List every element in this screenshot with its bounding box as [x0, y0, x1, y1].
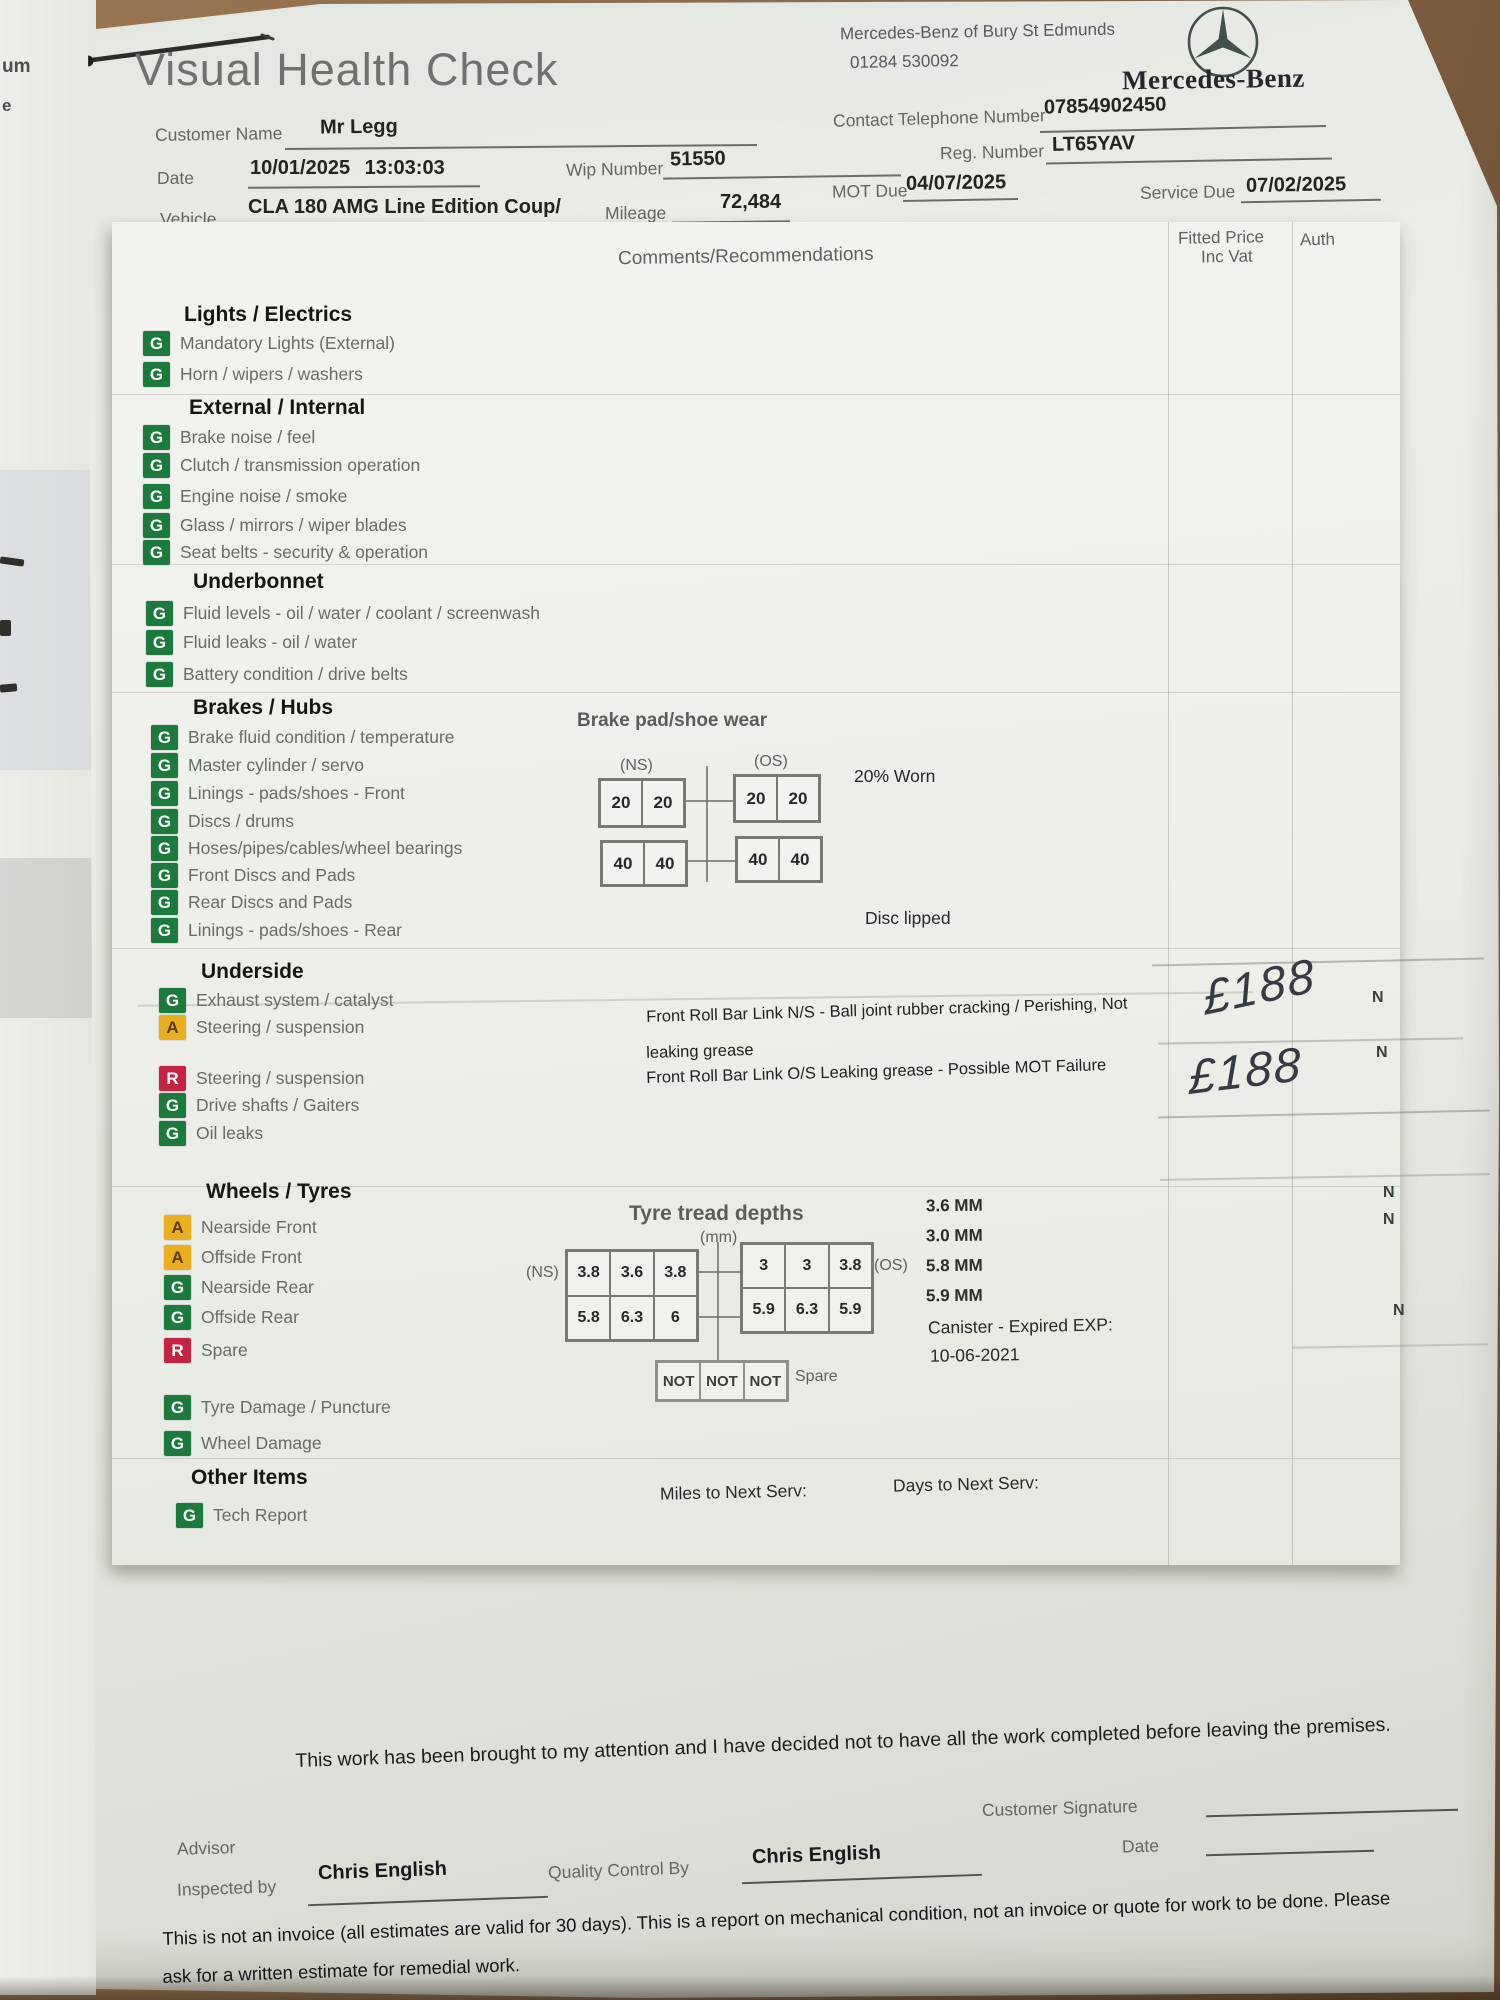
table-row-line — [112, 564, 1400, 565]
grid-cell: 20 — [735, 776, 777, 821]
status-badge-g: G — [143, 453, 170, 478]
customer-signature-label: Customer Signature — [982, 1796, 1138, 1821]
checklist-label: Nearside Front — [201, 1217, 317, 1238]
grid-cell: 6 — [654, 1296, 697, 1341]
status-badge-g: G — [176, 1503, 203, 1528]
grid-cell: 5.9 — [829, 1288, 872, 1332]
table-column-line — [1292, 222, 1293, 1565]
checklist-label: Oil leaks — [196, 1123, 263, 1144]
inspected-by-label: Inspected by — [177, 1876, 277, 1900]
table-row-line — [112, 1458, 1400, 1459]
paper-fragment-text: e — [2, 96, 11, 116]
service-due-label: Service Due — [1140, 181, 1236, 204]
grid-cell: 6.3 — [785, 1288, 828, 1332]
mot-due-label: MOT Due — [832, 180, 908, 202]
tyre-os-label: (OS) — [874, 1257, 908, 1275]
status-badge-g: G — [143, 331, 170, 356]
spare-tread-grid: NOTNOTNOT — [655, 1360, 789, 1402]
table-row-line — [112, 394, 1400, 395]
contact-telephone-value: 07854902450 — [1044, 93, 1167, 119]
auth-header: Auth — [1300, 230, 1335, 251]
photographed-document: { "title": "Visual Health Check", "deale… — [0, 0, 1500, 2000]
checklist-label: Offside Rear — [201, 1307, 299, 1328]
grid-cell: 20 — [600, 780, 642, 826]
checklist-label: Steering / suspension — [196, 1068, 364, 1089]
section-title: Underbonnet — [193, 570, 324, 594]
checklist-label: Hoses/pipes/cables/wheel bearings — [188, 838, 462, 859]
section-title: Underside — [201, 960, 304, 984]
status-badge-g: G — [151, 836, 178, 861]
auth-mark: N — [1372, 989, 1384, 1007]
brake-ns-label: (NS) — [620, 757, 653, 775]
status-badge-r: R — [159, 1066, 186, 1091]
auth-mark: N — [1383, 1211, 1395, 1229]
checklist-label: Engine noise / smoke — [180, 486, 347, 507]
comments-header: Comments/Recommendations — [618, 244, 874, 270]
auth-mark: N — [1383, 1184, 1395, 1202]
status-badge-g: G — [164, 1275, 191, 1300]
grid-cell: NOT — [700, 1362, 743, 1400]
footer-date-label: Date — [1122, 1836, 1160, 1858]
table-row-line — [112, 692, 1400, 693]
grid-cell: 40 — [737, 838, 779, 881]
vehicle-value: CLA 180 AMG Line Edition Coup/ — [248, 196, 561, 219]
disc-lipped-note: Disc lipped — [865, 908, 951, 929]
canister-note-line2: 10-06-2021 — [930, 1344, 1020, 1367]
checklist-label: Fluid levels - oil / water / coolant / s… — [183, 603, 540, 624]
axle-line — [699, 1271, 740, 1273]
tyre-tread-title: Tyre tread depths — [629, 1202, 804, 1226]
status-badge-g: G — [146, 601, 173, 626]
status-badge-g: G — [159, 988, 186, 1013]
ink-mark — [0, 683, 17, 692]
status-badge-a: A — [159, 1015, 186, 1040]
section-title: Lights / Electrics — [184, 303, 352, 327]
status-badge-g: G — [159, 1121, 186, 1146]
inspected-by-value: Chris English — [318, 1858, 448, 1885]
customer-declaration: This work has been brought to my attenti… — [295, 1714, 1391, 1773]
grid-cell: 20 — [777, 776, 819, 821]
photo-shadow — [0, 1976, 1500, 2000]
status-badge-g: G — [151, 809, 178, 834]
checklist-label: Battery condition / drive belts — [183, 664, 408, 685]
axle-line — [688, 860, 735, 862]
status-badge-g: G — [151, 918, 178, 943]
paper-fragment-text: um — [2, 56, 31, 78]
auth-mark: N — [1376, 1044, 1388, 1062]
wip-number-label: Wip Number — [566, 158, 664, 181]
brake-wear-ns-front: 2020 — [598, 778, 686, 828]
axle-line — [686, 800, 735, 802]
checklist-label: Linings - pads/shoes - Front — [188, 783, 405, 804]
checklist-label: Mandatory Lights (External) — [180, 333, 395, 354]
status-badge-a: A — [164, 1215, 191, 1240]
customer-name-label: Customer Name — [155, 123, 283, 146]
checklist-label: Tyre Damage / Puncture — [201, 1397, 391, 1418]
tyre-tread-ns-grid: 3.83.63.85.86.36 — [565, 1249, 699, 1342]
status-badge-r: R — [164, 1338, 191, 1363]
grid-cell: 40 — [779, 838, 821, 881]
tyre-ns-label: (NS) — [526, 1264, 559, 1282]
brake-wear-ns-rear: 4040 — [600, 840, 688, 887]
table-column-line — [1168, 222, 1169, 1565]
grid-cell: 3.8 — [654, 1251, 697, 1296]
tread-reading: 3.0 MM — [926, 1226, 983, 1247]
tyre-tread-os-grid: 333.85.96.35.9 — [740, 1242, 874, 1334]
grid-cell: 3.8 — [829, 1244, 872, 1288]
auth-mark: N — [1393, 1302, 1405, 1320]
grid-cell: 3.6 — [610, 1251, 653, 1296]
status-badge-g: G — [143, 513, 170, 538]
status-badge-g: G — [151, 781, 178, 806]
quality-control-label: Quality Control By — [548, 1858, 690, 1884]
status-badge-g: G — [151, 863, 178, 888]
checklist-label: Seat belts - security & operation — [180, 542, 428, 563]
section-title: Wheels / Tyres — [206, 1180, 352, 1204]
canister-note-line1: Canister - Expired EXP: — [928, 1314, 1113, 1338]
underlying-paper-shadow — [0, 858, 96, 1018]
field-underline — [1040, 125, 1326, 133]
brake-wear-os-rear: 4040 — [735, 836, 823, 883]
checklist-label: Fluid leaks - oil / water — [183, 632, 357, 653]
field-underline — [248, 185, 480, 189]
status-badge-g: G — [151, 890, 178, 915]
date-line — [1206, 1850, 1374, 1856]
checklist-label: Master cylinder / servo — [188, 755, 364, 776]
status-badge-g: G — [151, 725, 178, 750]
checklist-label: Brake fluid condition / temperature — [188, 727, 455, 748]
grid-cell: NOT — [744, 1362, 787, 1400]
checklist-label: Spare — [201, 1340, 248, 1361]
axle-line — [706, 766, 708, 882]
section-title: External / Internal — [189, 396, 365, 420]
reg-number-value: LT65YAV — [1052, 132, 1135, 157]
tread-reading: 3.6 MM — [926, 1196, 983, 1217]
date-value: 10/01/2025 13:03:03 — [250, 157, 445, 180]
grid-cell: 3 — [742, 1244, 785, 1288]
checklist-label: Tech Report — [213, 1505, 307, 1526]
visual-health-check-sheet: Visual Health Check Mercedes-Benz of Bur… — [0, 0, 1500, 2000]
checklist-label: Linings - pads/shoes - Rear — [188, 920, 402, 941]
tread-reading: 5.9 MM — [926, 1286, 983, 1307]
checklist-label: Wheel Damage — [201, 1433, 322, 1454]
mercedes-wordmark: Mercedes-Benz — [1122, 63, 1305, 97]
dealer-name: Mercedes-Benz of Bury St Edmunds — [840, 20, 1115, 45]
grid-cell: 3 — [785, 1244, 828, 1288]
brake-os-label: (OS) — [754, 753, 788, 771]
spare-label: Spare — [795, 1368, 838, 1386]
price-header-line2: Inc Vat — [1201, 247, 1253, 268]
miles-to-next-service-label: Miles to Next Serv: — [660, 1480, 807, 1504]
grid-cell: 6.3 — [610, 1296, 653, 1341]
days-to-next-service-label: Days to Next Serv: — [893, 1472, 1039, 1496]
service-due-value: 07/02/2025 — [1246, 173, 1346, 198]
brake-worn-note: 20% Worn — [854, 766, 935, 787]
quality-control-value: Chris English — [752, 1842, 882, 1869]
page-title: Visual Health Check — [135, 44, 558, 96]
field-underline — [903, 198, 1018, 202]
field-underline — [1046, 158, 1332, 165]
brake-wear-os-front: 2020 — [733, 774, 821, 823]
advisor-label: Advisor — [177, 1837, 236, 1860]
wip-number-value: 51550 — [670, 148, 726, 172]
checklist-label: Horn / wipers / washers — [180, 364, 363, 385]
dealer-phone: 01284 530092 — [850, 51, 959, 73]
grid-cell: 40 — [644, 842, 686, 885]
checklist-label: Front Discs and Pads — [188, 865, 355, 886]
status-badge-g: G — [143, 425, 170, 450]
field-underline — [1241, 199, 1381, 203]
section-title: Brakes / Hubs — [193, 696, 333, 720]
mileage-label: Mileage — [605, 203, 666, 224]
checklist-label: Offside Front — [201, 1247, 302, 1268]
checklist-label: Steering / suspension — [196, 1017, 364, 1038]
status-badge-g: G — [164, 1395, 191, 1420]
grid-cell: 5.9 — [742, 1288, 785, 1332]
tread-reading: 5.8 MM — [926, 1256, 983, 1277]
checklist-label: Discs / drums — [188, 811, 294, 832]
contact-telephone-label: Contact Telephone Number — [833, 105, 1046, 132]
checklist-label: Exhaust system / catalyst — [196, 990, 393, 1011]
customer-name-value: Mr Legg — [320, 115, 398, 139]
status-badge-g: G — [146, 662, 173, 687]
customer-signature-line — [1206, 1809, 1458, 1818]
status-badge-g: G — [143, 484, 170, 509]
status-badge-a: A — [164, 1245, 191, 1270]
status-badge-g: G — [164, 1305, 191, 1330]
section-title: Other Items — [191, 1466, 308, 1490]
inspected-by-line — [308, 1896, 548, 1906]
status-badge-g: G — [159, 1093, 186, 1118]
quality-control-line — [742, 1874, 982, 1884]
grid-cell: 5.8 — [567, 1296, 610, 1341]
field-underline — [663, 174, 901, 179]
checklist-label: Rear Discs and Pads — [188, 892, 352, 913]
mot-due-value: 04/07/2025 — [906, 171, 1006, 196]
ink-mark — [0, 620, 11, 636]
grid-cell: NOT — [657, 1362, 700, 1400]
mileage-value: 72,484 — [720, 191, 781, 214]
grid-cell: 3.8 — [567, 1251, 610, 1296]
status-badge-g: G — [143, 540, 170, 565]
date-label: Date — [157, 168, 194, 189]
checklist-label: Brake noise / feel — [180, 427, 315, 448]
grid-cell: 40 — [602, 842, 644, 885]
status-badge-g: G — [146, 630, 173, 655]
reg-number-label: Reg. Number — [940, 141, 1044, 164]
checklist-label: Nearside Rear — [201, 1277, 314, 1298]
grid-cell: 20 — [642, 780, 684, 826]
comment-line: leaking grease — [646, 1041, 754, 1063]
price-header-line1: Fitted Price — [1178, 227, 1264, 248]
checklist-label: Drive shafts / Gaiters — [196, 1095, 359, 1116]
axle-line — [699, 1316, 740, 1318]
axle-line — [717, 1242, 719, 1362]
disclaimer-line1: This is not an invoice (all estimates ar… — [162, 1887, 1391, 1950]
brake-wear-title: Brake pad/shoe wear — [577, 710, 767, 732]
underlying-paper-tint — [0, 470, 96, 770]
status-badge-g: G — [164, 1431, 191, 1456]
checklist-label: Glass / mirrors / wiper blades — [180, 515, 407, 536]
status-badge-g: G — [143, 362, 170, 387]
table-row-line — [112, 948, 1400, 949]
checklist-label: Clutch / transmission operation — [180, 455, 420, 476]
status-badge-g: G — [151, 753, 178, 778]
